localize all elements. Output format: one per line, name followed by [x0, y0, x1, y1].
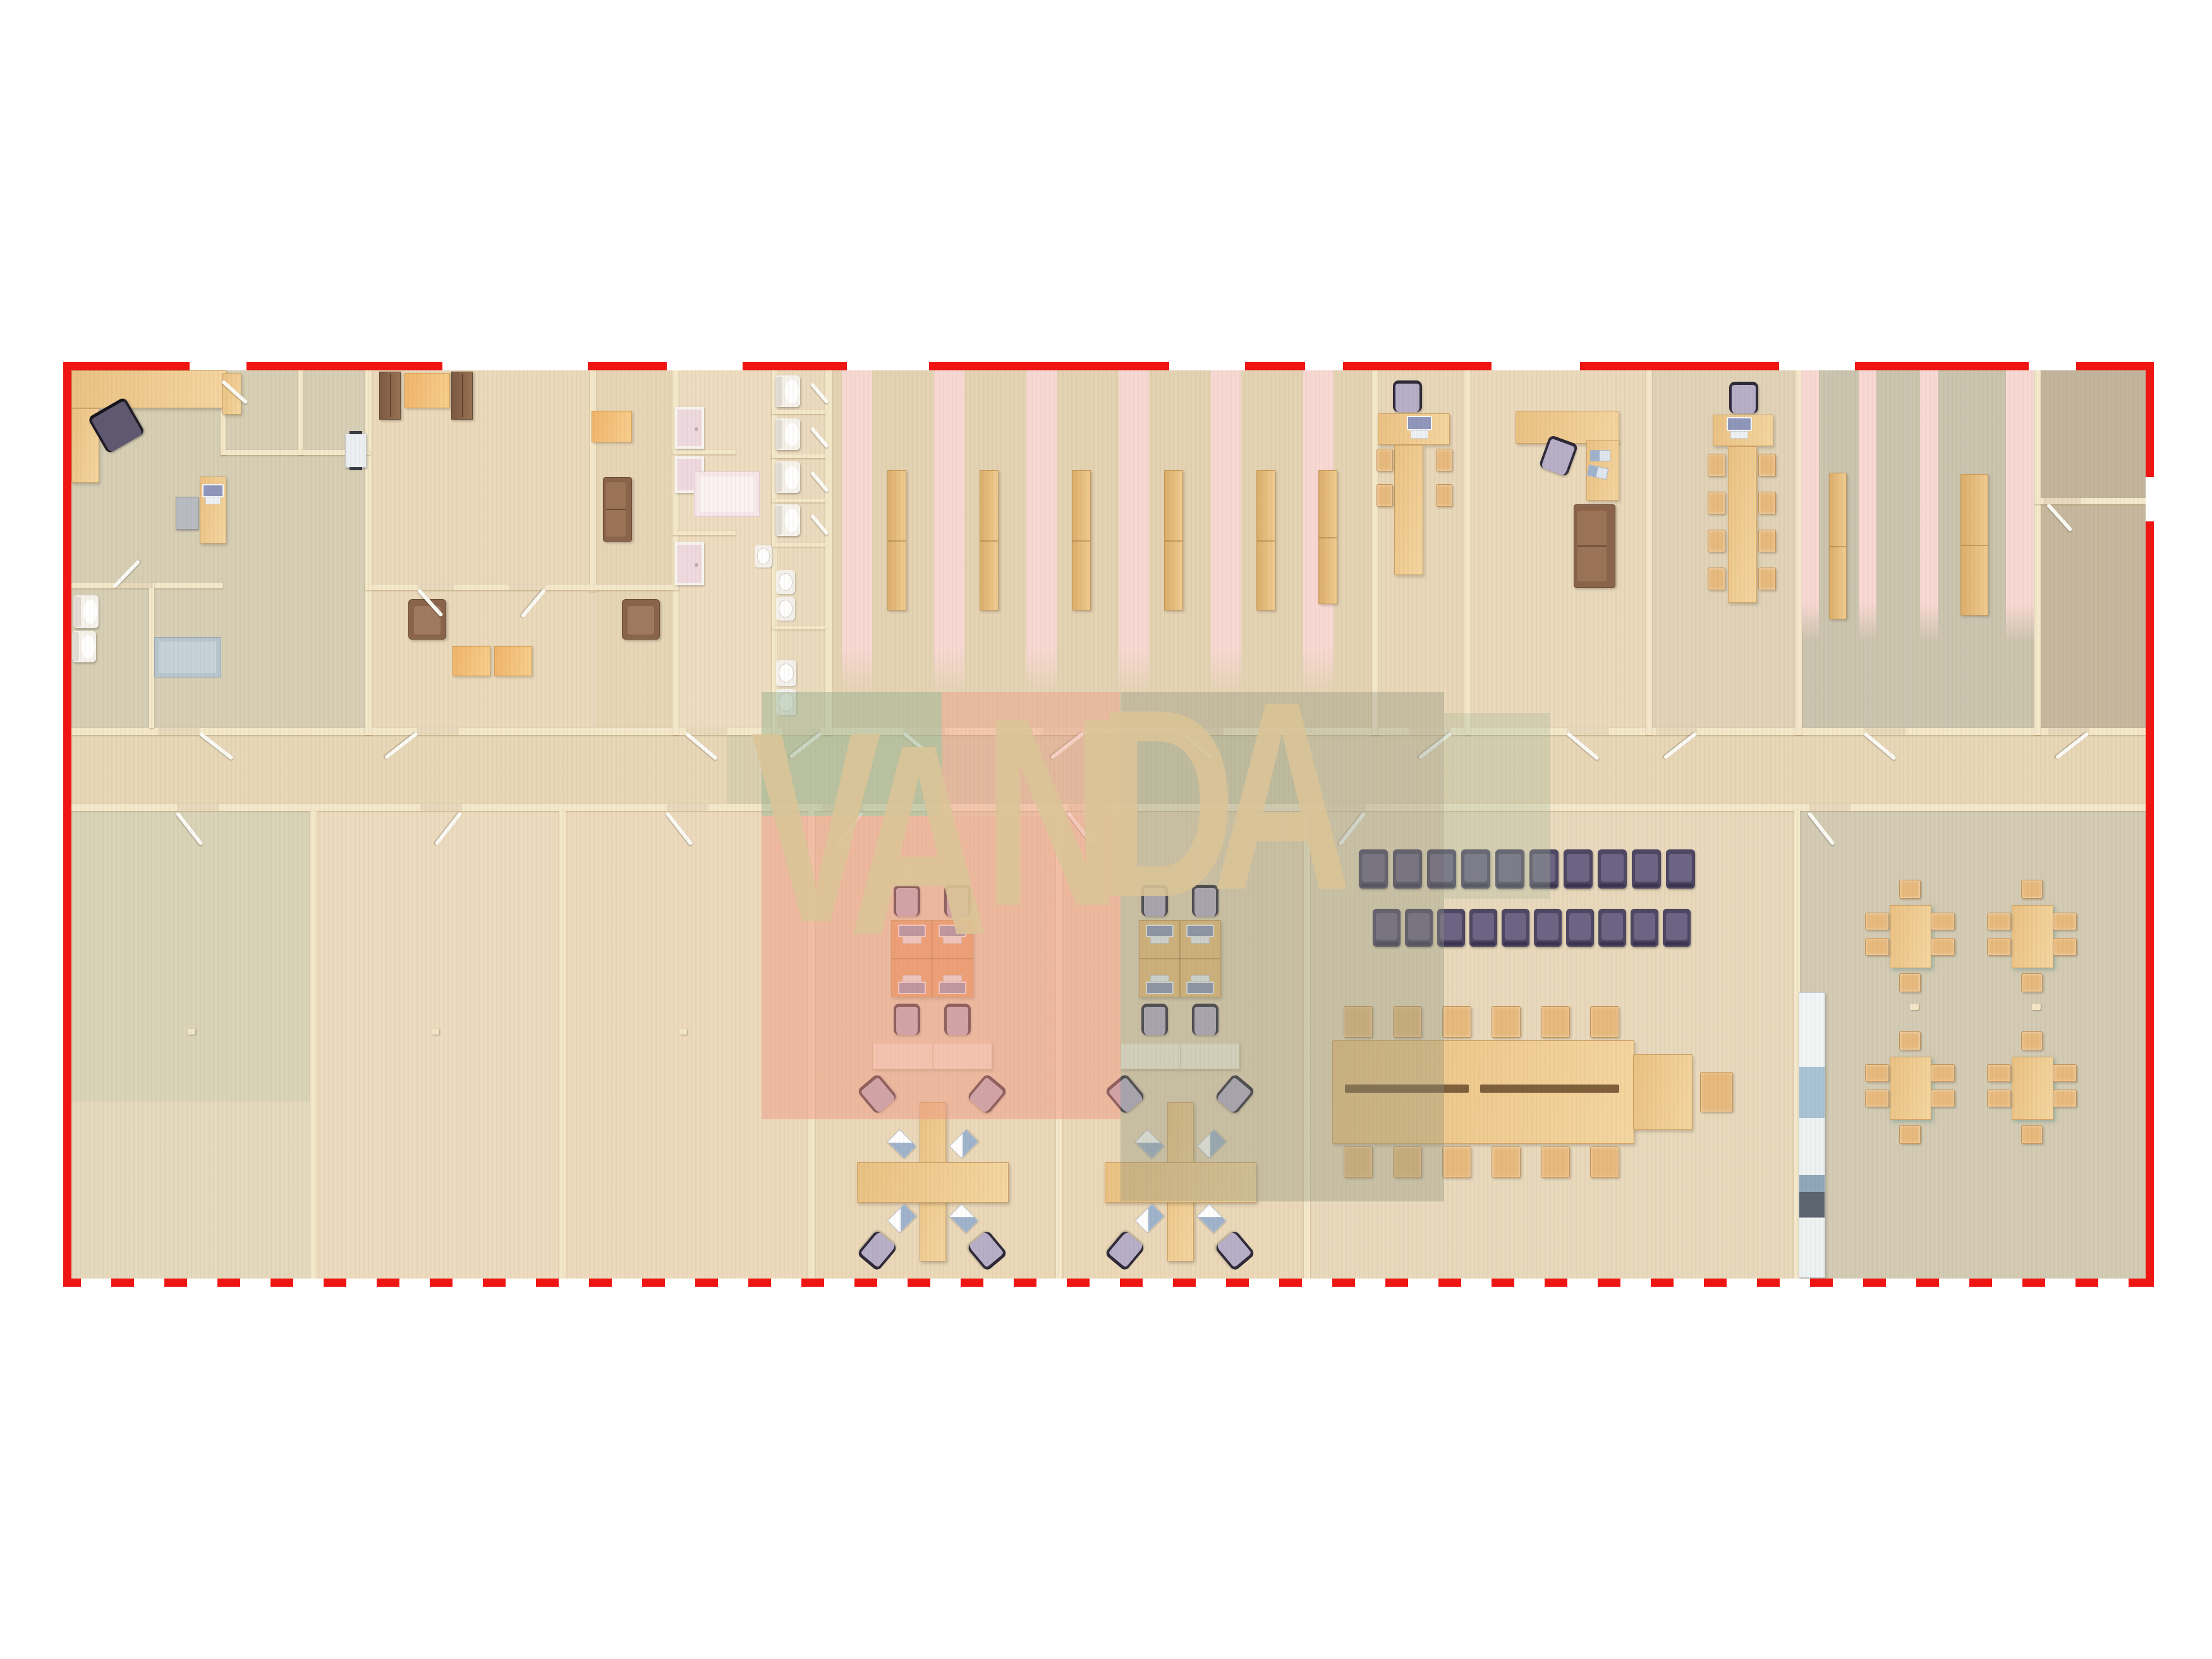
conference-chair: [1566, 909, 1594, 947]
stool: [1865, 938, 1889, 956]
window-opening: [1886, 1279, 1916, 1287]
door-gap: [158, 728, 200, 735]
stool: [1442, 1006, 1471, 1038]
window-opening: [1514, 1279, 1545, 1287]
bench: [1318, 470, 1337, 604]
watermark-letter: A: [848, 705, 990, 976]
wall: [772, 543, 825, 547]
conference-chair: [1632, 849, 1661, 889]
stool: [1590, 1146, 1619, 1178]
reception-counter: [71, 370, 227, 408]
door-gap: [686, 728, 727, 735]
armchair: [622, 599, 660, 640]
stool: [2021, 880, 2043, 899]
window-opening: [1143, 1279, 1173, 1287]
stool: [1700, 1072, 1733, 1112]
stool: [1758, 454, 1776, 477]
wall: [772, 454, 825, 458]
window-opening: [134, 1279, 164, 1287]
wall: [772, 410, 825, 414]
stool: [1987, 913, 2011, 930]
ceiling-light-dot: [432, 1029, 439, 1035]
window-opening: [1169, 362, 1245, 370]
door-gap: [418, 585, 454, 590]
conference-chair: [1598, 909, 1626, 947]
cafeteria-table-group: [1856, 880, 1964, 992]
shower-tray: [675, 407, 704, 449]
stool: [1758, 492, 1776, 514]
window-opening: [771, 1279, 801, 1287]
window-opening: [2146, 477, 2154, 521]
window-opening: [2098, 1279, 2129, 1287]
stool: [1931, 913, 1955, 930]
stool: [1708, 530, 1725, 552]
conference-chair: [1663, 909, 1691, 947]
wall: [772, 499, 825, 502]
watermark-letter: A: [1212, 662, 1352, 930]
stool: [2021, 1125, 2043, 1144]
stool: [1376, 484, 1393, 507]
door-gap: [417, 728, 459, 735]
wall: [1464, 370, 1471, 735]
laptop-icon: [1590, 450, 1610, 461]
toilet: [72, 631, 96, 662]
ceiling-light-dot: [679, 1029, 687, 1035]
wood: [1516, 411, 1619, 444]
ceiling-light-dot: [2032, 1004, 2041, 1010]
stool: [1865, 913, 1889, 930]
stool: [1987, 938, 2011, 956]
table-o: [494, 646, 532, 676]
wall: [298, 370, 303, 455]
floor-tint: [1800, 811, 2146, 1279]
stool: [1436, 449, 1452, 471]
conference-chair: [1631, 909, 1658, 947]
laptop-icon: [1135, 1204, 1165, 1234]
sofa-v: [1574, 504, 1615, 588]
bench: [980, 470, 999, 611]
window-opening: [346, 1279, 377, 1287]
floorplan-render-page: VANDA: [0, 0, 2212, 1659]
stool: [1899, 973, 1921, 992]
stool: [1492, 1146, 1521, 1178]
kitchen-counter: [1799, 992, 1825, 1278]
door-gap: [509, 585, 545, 590]
stool: [1987, 1064, 2011, 1082]
door-gap: [177, 804, 219, 811]
laptop-icon: [1197, 1204, 1227, 1234]
mat-blue: [154, 637, 221, 678]
wall: [559, 811, 566, 1279]
wall: [310, 811, 317, 1279]
window-opening: [824, 1279, 854, 1287]
conference-chair: [1534, 909, 1562, 947]
door-gap: [1809, 804, 1850, 811]
toilet: [775, 418, 800, 450]
sink: [776, 570, 795, 594]
wall: [2034, 370, 2041, 735]
cafeteria-table-group: [1978, 880, 2086, 992]
window-opening: [930, 1279, 961, 1287]
stool: [1865, 1090, 1889, 1107]
window-opening: [399, 1279, 430, 1287]
window-opening: [983, 1279, 1014, 1287]
stool: [1899, 1031, 1921, 1050]
table-o: [592, 411, 632, 442]
monitor-icon: [1727, 417, 1752, 439]
toilet: [73, 595, 99, 628]
skylight-stripe: [1801, 370, 1819, 641]
cafeteria-table-group: [1978, 1031, 2086, 1144]
stool: [2053, 938, 2077, 956]
window-opening: [667, 362, 743, 370]
window-opening: [1727, 1279, 1757, 1287]
window-opening: [877, 1279, 908, 1287]
wall: [1646, 370, 1652, 735]
cab-brown: [451, 372, 473, 420]
cafeteria-table-group: [1856, 1031, 1964, 1144]
mat-pink: [694, 471, 760, 517]
window-opening: [1780, 1279, 1810, 1287]
room-empty-2: [317, 811, 559, 1279]
door-gap: [1864, 728, 1906, 735]
skylight-stripe: [1119, 370, 1149, 694]
cafeteria-table: [2012, 905, 2053, 968]
stool: [1708, 492, 1725, 514]
door-gap: [1567, 728, 1609, 735]
laptop-icon: [949, 1204, 979, 1234]
stool: [1899, 880, 1921, 899]
sink: [776, 597, 795, 621]
stool: [1708, 454, 1725, 477]
wall: [365, 370, 372, 735]
stool: [1931, 1090, 1955, 1107]
skylight-stripe: [1026, 370, 1057, 694]
stool: [1492, 1006, 1521, 1038]
wood: [1394, 445, 1423, 575]
pass-through-table: [345, 434, 367, 468]
wm-block-green-right: [1444, 713, 1550, 899]
window-opening: [1408, 1279, 1438, 1287]
office-chair: [1393, 380, 1422, 412]
window-opening: [612, 1279, 642, 1287]
conference-chair: [1666, 849, 1695, 889]
toilet: [775, 375, 800, 407]
stool: [1541, 1006, 1570, 1038]
stool: [1758, 530, 1776, 552]
window-opening: [1355, 1279, 1385, 1287]
window-opening: [1090, 1279, 1120, 1287]
window-opening: [1992, 1279, 2022, 1287]
skylight-stripe: [934, 370, 964, 694]
window-opening: [506, 1279, 536, 1287]
ceiling-light-dot: [1910, 1004, 1919, 1010]
stool: [1931, 938, 1955, 956]
bench: [1960, 474, 1988, 616]
wall: [149, 583, 154, 728]
table-o: [404, 373, 450, 408]
stool: [1708, 568, 1725, 590]
window-opening: [1833, 1279, 1863, 1287]
window-opening: [1674, 1279, 1704, 1287]
skylight-stripe: [2006, 370, 2034, 642]
stool: [2021, 1031, 2043, 1050]
armchair: [408, 599, 446, 640]
cafeteria-table: [1890, 1057, 1931, 1120]
cab-brown: [379, 372, 401, 420]
window-opening: [190, 362, 246, 370]
bench: [1829, 473, 1847, 619]
floor-tint: [2041, 370, 2146, 728]
cafeteria-table: [2012, 1057, 2053, 1120]
window-opening: [559, 1279, 589, 1287]
stool: [2021, 973, 2043, 992]
stool: [1442, 1146, 1471, 1178]
skylight-stripe: [1859, 370, 1876, 641]
window-opening: [718, 1279, 748, 1287]
conference-chair: [1502, 909, 1529, 947]
monitor-icon: [1407, 416, 1432, 439]
window-opening: [1249, 1279, 1279, 1287]
window-opening: [1492, 362, 1580, 370]
bench: [1072, 470, 1091, 611]
wall: [672, 450, 736, 454]
window-opening: [81, 1279, 111, 1287]
stool: [2053, 1064, 2077, 1082]
bench: [887, 470, 906, 611]
window-opening: [1196, 1279, 1226, 1287]
window-opening: [2045, 1279, 2075, 1287]
shower-tray: [675, 542, 704, 585]
window-opening: [240, 1279, 270, 1287]
laptop-icon: [887, 1204, 917, 1234]
window-opening: [1567, 1279, 1598, 1287]
stool: [1541, 1146, 1570, 1178]
wall: [590, 370, 596, 592]
sofa-v: [603, 477, 632, 542]
table-groove: [1480, 1085, 1619, 1093]
conference-chair: [1598, 849, 1627, 889]
window-opening: [1305, 362, 1343, 370]
wood: [1633, 1054, 1692, 1130]
stool: [1590, 1006, 1619, 1038]
laptop-icon: [949, 1129, 979, 1159]
wall: [772, 626, 825, 629]
window-opening: [1939, 1279, 1969, 1287]
window-opening: [2029, 362, 2076, 370]
window-opening: [187, 1279, 217, 1287]
window-opening: [1620, 1279, 1651, 1287]
desk-slab: [857, 1162, 1009, 1203]
window-opening: [442, 362, 588, 370]
stool: [1376, 449, 1393, 471]
window-opening: [293, 1279, 324, 1287]
stool: [1987, 1090, 2011, 1107]
bench: [1164, 470, 1183, 611]
window-opening: [1461, 1279, 1492, 1287]
stool: [1436, 484, 1452, 507]
wood: [1728, 446, 1757, 603]
conference-chair: [1469, 909, 1497, 947]
window-opening: [1302, 1279, 1332, 1287]
table-o: [453, 646, 490, 676]
floor-tint: [71, 811, 310, 1102]
window-opening: [1036, 1279, 1067, 1287]
toilet: [775, 461, 800, 493]
stool: [2053, 1090, 2077, 1107]
wall: [672, 531, 736, 535]
stool: [1899, 1125, 1921, 1144]
door-gap: [420, 804, 462, 811]
stool: [1865, 1064, 1889, 1082]
window-opening: [847, 362, 929, 370]
office-chair: [1729, 382, 1758, 413]
laptop-icon: [887, 1129, 917, 1159]
window-opening: [453, 1279, 483, 1287]
ceiling-light-dot: [188, 1029, 195, 1035]
stool: [2053, 913, 2077, 930]
window-opening: [665, 1279, 695, 1287]
skylight-stripe: [842, 370, 872, 694]
bench: [1256, 470, 1275, 611]
stool: [1931, 1064, 1955, 1082]
monitor-icon: [202, 484, 224, 504]
window-opening: [1779, 362, 1855, 370]
sink: [755, 545, 772, 568]
conference-chair: [1564, 849, 1593, 889]
cafeteria-table: [1890, 905, 1931, 968]
toilet: [775, 504, 800, 536]
stool: [1758, 568, 1776, 590]
door-gap: [667, 804, 708, 811]
skylight-stripe: [1920, 370, 1938, 642]
cab-gray: [176, 497, 198, 530]
